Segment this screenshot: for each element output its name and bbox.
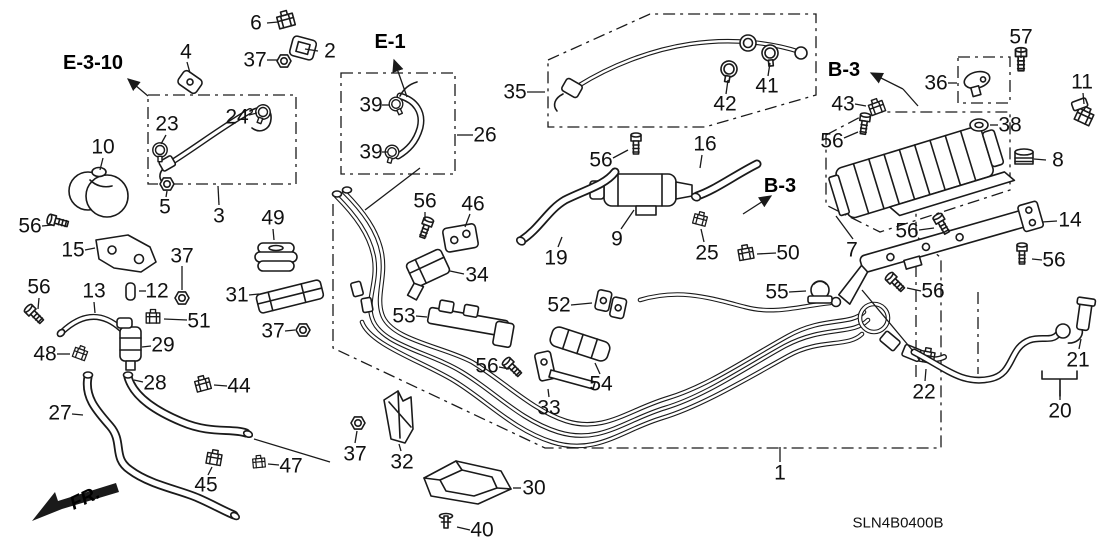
part-6-clip xyxy=(276,9,296,29)
part-label-4: 4 xyxy=(180,42,192,63)
part-label-21: 21 xyxy=(1066,350,1089,371)
leader-line xyxy=(757,253,776,254)
part-label-51: 51 xyxy=(187,311,210,332)
leader-line xyxy=(72,414,83,415)
part-43-clip xyxy=(867,97,885,115)
part-30-shield xyxy=(424,461,511,504)
part-56-bolt-h xyxy=(884,271,906,293)
part-label-56: 56 xyxy=(27,277,50,298)
ref-label-e-3-10: E-3-10 xyxy=(63,53,123,73)
part-label-56: 56 xyxy=(895,221,918,242)
part-label-34: 34 xyxy=(465,265,488,286)
leader-line xyxy=(457,527,470,530)
part-40-clip xyxy=(440,514,453,529)
part-53-bracket xyxy=(425,298,516,347)
part-16-hose xyxy=(690,164,757,202)
part-26-hose xyxy=(398,82,421,156)
part-label-19: 19 xyxy=(544,248,567,269)
ref-arrow xyxy=(394,60,407,97)
part-50-clip xyxy=(737,244,754,261)
part-label-25: 25 xyxy=(695,243,718,264)
part-label-41: 41 xyxy=(755,76,778,97)
part-label-31: 31 xyxy=(225,285,248,306)
leader-line xyxy=(42,225,52,226)
part-label-44: 44 xyxy=(227,376,250,397)
leader-line xyxy=(1042,221,1057,222)
diagram-code: SLN4B0400B xyxy=(853,515,944,532)
part-label-13: 13 xyxy=(82,281,105,302)
leader-line xyxy=(907,288,921,291)
part-label-20: 20 xyxy=(1048,401,1071,422)
part-29-valve xyxy=(117,318,141,370)
part-label-15: 15 xyxy=(61,240,84,261)
leader-line xyxy=(273,229,274,240)
part-label-12: 12 xyxy=(145,281,168,302)
leader-line xyxy=(450,271,464,274)
part-10-fuel-pump xyxy=(69,168,128,218)
part-label-27: 27 xyxy=(48,403,71,424)
leader-line xyxy=(134,380,143,382)
part-label-8: 8 xyxy=(1052,150,1064,171)
leader-line xyxy=(558,237,562,247)
part-label-56: 56 xyxy=(1042,250,1065,271)
leader-line xyxy=(268,464,279,465)
part-label-40: 40 xyxy=(470,520,493,541)
leader-line xyxy=(1032,259,1042,260)
leader-line xyxy=(571,303,592,305)
part-label-33: 33 xyxy=(537,398,560,419)
part-8-grommet xyxy=(1015,149,1033,164)
part-label-22: 22 xyxy=(912,382,935,403)
leader-line xyxy=(621,210,634,229)
part-12-pin xyxy=(126,283,135,300)
part-label-53: 53 xyxy=(392,306,415,327)
part-37-nut-c xyxy=(296,324,310,336)
part-47-clip xyxy=(252,455,265,468)
part-label-56: 56 xyxy=(18,216,41,237)
part-2-grommet xyxy=(289,35,317,61)
part-37-nut-a xyxy=(277,55,291,67)
leader-line xyxy=(700,155,702,168)
leader-line xyxy=(919,228,934,230)
leader-line xyxy=(701,229,704,242)
parts-diagram-canvas: 1234567891011121314151619202122232425262… xyxy=(0,0,1108,553)
part-label-24: 24 xyxy=(225,107,248,128)
leader-line xyxy=(1034,159,1046,160)
part-56-bolt-g xyxy=(932,212,951,235)
part-label-46: 46 xyxy=(461,194,484,215)
leader-line xyxy=(355,431,357,443)
part-label-10: 10 xyxy=(91,137,114,158)
leader-line xyxy=(789,291,806,292)
part-label-37: 37 xyxy=(170,246,193,267)
part-31-bracket xyxy=(256,279,325,313)
part-label-38: 38 xyxy=(998,115,1021,136)
part-label-56: 56 xyxy=(921,281,944,302)
part-label-55: 55 xyxy=(765,282,788,303)
part-label-29: 29 xyxy=(151,335,174,356)
ref-arrow xyxy=(743,196,771,214)
ref-label-b-3: B-3 xyxy=(764,176,796,196)
part-label-35: 35 xyxy=(503,82,526,103)
leader-line xyxy=(142,346,151,347)
leader-line xyxy=(613,150,628,158)
leader-line xyxy=(844,132,858,138)
part-label-39: 39 xyxy=(359,142,382,163)
part-49-mount xyxy=(255,243,297,271)
part-label-9: 9 xyxy=(611,229,623,250)
part-label-56: 56 xyxy=(475,356,498,377)
part-label-42: 42 xyxy=(713,94,736,115)
leader-line xyxy=(836,216,853,239)
part-label-37: 37 xyxy=(261,321,284,342)
part-label-26: 26 xyxy=(473,125,496,146)
part-46-plate xyxy=(442,223,479,252)
part-label-16: 16 xyxy=(693,134,716,155)
part-label-2: 2 xyxy=(324,41,336,62)
leader-line xyxy=(38,298,39,309)
part-44-clip xyxy=(194,374,212,392)
part-label-39: 39 xyxy=(359,95,382,116)
part-56-bolt-f xyxy=(858,112,871,134)
part-48-clip xyxy=(72,344,88,360)
part-label-37: 37 xyxy=(343,444,366,465)
box-pipe3 xyxy=(148,95,296,184)
part-label-11: 11 xyxy=(1071,72,1093,93)
part-label-5: 5 xyxy=(159,197,171,218)
part-19-hose xyxy=(515,172,615,246)
part-label-49: 49 xyxy=(261,208,284,229)
leader-lines xyxy=(38,22,1084,530)
part-label-36: 36 xyxy=(924,73,947,94)
part-51-clip xyxy=(146,310,160,324)
leader-line xyxy=(267,22,278,23)
part-56-bolt-i xyxy=(1017,243,1027,264)
part-54-clamp xyxy=(548,325,611,363)
part-15-bracket xyxy=(96,235,156,272)
leader-line xyxy=(214,385,227,386)
part-7-canister xyxy=(827,120,1015,232)
leader-line xyxy=(1079,339,1081,349)
ref-arrow xyxy=(128,79,148,96)
part-label-47: 47 xyxy=(279,456,302,477)
leader-line xyxy=(925,369,926,381)
part-24-clamp xyxy=(252,103,272,126)
part-label-3: 3 xyxy=(213,206,225,227)
part-56-bolt-c xyxy=(418,216,435,239)
part-55-clamp xyxy=(808,281,832,303)
part-36-sensor xyxy=(962,69,993,98)
part-label-1: 1 xyxy=(774,463,786,484)
part-label-43: 43 xyxy=(831,94,854,115)
part-13-hose xyxy=(56,317,121,338)
part-label-56: 56 xyxy=(589,150,612,171)
leader-line xyxy=(855,104,866,106)
part-56-bolt-e xyxy=(631,133,641,154)
part-label-56: 56 xyxy=(820,131,843,152)
leader-line xyxy=(416,316,427,317)
ref-arrow xyxy=(871,73,903,89)
part-37-nut-b xyxy=(175,292,189,304)
part-label-30: 30 xyxy=(522,478,545,499)
part-label-45: 45 xyxy=(194,475,217,496)
part-34-joint xyxy=(395,248,455,302)
part-38-washer xyxy=(970,119,988,131)
part-label-28: 28 xyxy=(143,373,166,394)
part-56-bolt-b xyxy=(23,303,45,325)
part-37-nut-d xyxy=(351,417,365,429)
part-25-clamp xyxy=(693,211,709,227)
part-42-clamp xyxy=(719,60,738,83)
part-label-37: 37 xyxy=(243,50,266,71)
part-label-52: 52 xyxy=(547,295,570,316)
part-label-32: 32 xyxy=(390,452,413,473)
part-39-clamp-b xyxy=(383,144,401,165)
ref-label-e-1: E-1 xyxy=(374,32,405,52)
ref-label-b-3: B-3 xyxy=(828,60,860,80)
part-56-bolt-a xyxy=(46,214,69,229)
part-21-connector xyxy=(1068,297,1095,346)
part-32-bracket xyxy=(384,391,413,443)
part-label-50: 50 xyxy=(776,243,799,264)
part-52-clamp xyxy=(594,289,628,319)
leader-line xyxy=(218,186,219,205)
part-label-56: 56 xyxy=(413,191,436,212)
box-pipe35 xyxy=(548,14,816,127)
leader-line xyxy=(161,135,166,144)
leader-line xyxy=(164,319,187,320)
part-label-48: 48 xyxy=(33,344,56,365)
leader-line xyxy=(94,302,95,313)
part-5-nut xyxy=(160,178,174,190)
part-label-57: 57 xyxy=(1009,27,1032,48)
part-45-clip xyxy=(206,449,223,466)
part-label-6: 6 xyxy=(250,13,262,34)
leader-line xyxy=(285,330,295,331)
part-label-23: 23 xyxy=(155,114,178,135)
part-56-bolt-d xyxy=(501,356,523,378)
part-label-14: 14 xyxy=(1058,210,1081,231)
part-label-7: 7 xyxy=(846,240,858,261)
leader-line xyxy=(85,248,95,250)
b3-leader-segment xyxy=(903,89,918,106)
part-label-54: 54 xyxy=(589,374,612,395)
